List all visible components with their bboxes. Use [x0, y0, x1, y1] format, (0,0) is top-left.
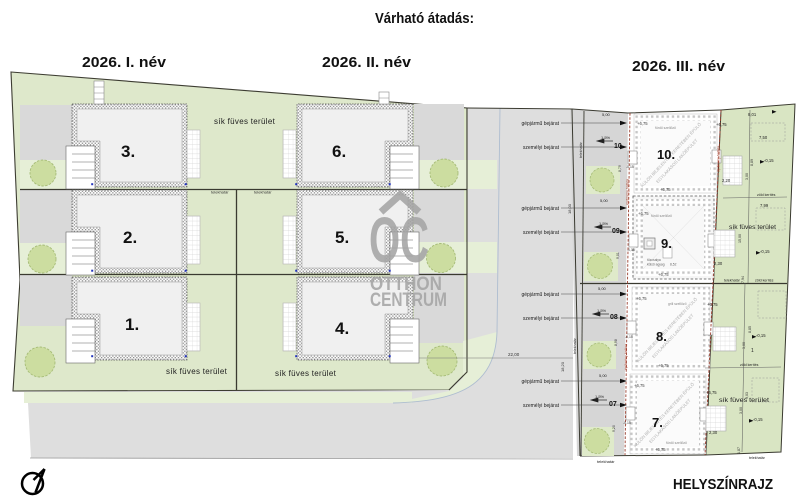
svg-text:2026. I. név: 2026. I. név	[82, 54, 167, 71]
svg-text:10: 10	[614, 143, 622, 150]
svg-text:2.: 2.	[123, 228, 137, 247]
svg-text:08: 08	[610, 314, 618, 321]
svg-text:sík füves terület: sík füves terület	[275, 369, 337, 378]
svg-text:telekhatár: telekhatár	[749, 456, 766, 460]
svg-text:3,00: 3,00	[745, 173, 749, 180]
svg-text:1: 1	[751, 348, 754, 354]
svg-text:8,01: 8,01	[748, 112, 757, 117]
svg-text:telekhatár: telekhatár	[597, 459, 615, 464]
svg-text:tűzcsalya: tűzcsalya	[647, 258, 661, 262]
svg-text:-0,15: -0,15	[760, 249, 770, 254]
svg-text:22,00: 22,00	[508, 352, 520, 357]
svg-text:gépjármű bejárat: gépjármű bejárat	[521, 379, 559, 385]
svg-text:09: 09	[612, 228, 620, 235]
svg-text:telekhatár: telekhatár	[211, 190, 229, 195]
svg-text:5,00: 5,00	[599, 373, 608, 378]
svg-text:OC: OC	[369, 204, 429, 276]
svg-text:10.: 10.	[657, 147, 675, 162]
svg-text:telekhatár: telekhatár	[579, 141, 583, 158]
svg-text:5.: 5.	[335, 228, 349, 247]
svg-text:5,00: 5,00	[600, 198, 609, 203]
svg-text:6.: 6.	[332, 142, 346, 161]
svg-text:07: 07	[609, 401, 617, 408]
svg-text:18,20: 18,20	[560, 361, 565, 372]
svg-text:2026. II. név: 2026. II. név	[322, 54, 412, 71]
svg-text:8,52: 8,52	[670, 263, 677, 267]
svg-text:telekhatár: telekhatár	[724, 279, 741, 283]
svg-text:telekhatár: telekhatár	[254, 190, 272, 195]
svg-text:+6,75: +6,75	[655, 447, 666, 452]
svg-text:-0,15: -0,15	[753, 417, 763, 422]
svg-text:fürdő szellőző: fürdő szellőző	[651, 214, 672, 218]
svg-text:1,87: 1,87	[737, 447, 741, 454]
svg-text:+6,75: +6,75	[706, 390, 717, 395]
svg-text:építmény határa: építmény határa	[717, 146, 721, 172]
svg-text:8,98: 8,98	[614, 339, 618, 346]
svg-text:HELYSZÍNRAJZ: HELYSZÍNRAJZ	[673, 476, 773, 493]
svg-text:gépjármű bejárat: gépjármű bejárat	[521, 206, 559, 212]
svg-text:8,79: 8,79	[618, 165, 622, 172]
svg-text:3,00: 3,00	[739, 407, 743, 414]
svg-text:-0,15: -0,15	[764, 158, 774, 163]
svg-text:7,99: 7,99	[760, 203, 769, 208]
svg-text:Várható átadás:: Várható átadás:	[375, 10, 474, 27]
svg-text:grill szellőző: grill szellőző	[668, 302, 687, 306]
svg-text:9,20: 9,20	[612, 425, 616, 432]
svg-text:2,30: 2,30	[714, 261, 723, 266]
svg-text:külső agyag: külső agyag	[647, 263, 665, 267]
svg-text:személyi bejárat: személyi bejárat	[523, 316, 560, 322]
svg-text:-0,15: -0,15	[623, 421, 631, 425]
svg-text:fürdő szellőző: fürdő szellőző	[666, 441, 687, 445]
svg-text:8,85: 8,85	[748, 326, 752, 333]
svg-text:4.: 4.	[335, 319, 349, 338]
svg-text:+6,75: +6,75	[637, 121, 648, 126]
svg-text:+6,75: +6,75	[658, 363, 669, 368]
svg-text:zöld kerítés: zöld kerítés	[755, 279, 774, 283]
svg-text:-0,15: -0,15	[626, 165, 634, 169]
svg-text:+6,75: +6,75	[707, 302, 718, 307]
svg-text:9,01: 9,01	[616, 252, 620, 259]
svg-text:1.: 1.	[125, 315, 139, 334]
svg-text:-0,15: -0,15	[627, 248, 635, 252]
svg-text:+6,75: +6,75	[638, 211, 649, 216]
svg-text:gépjármű bejárat: gépjármű bejárat	[521, 292, 559, 298]
svg-text:sík füves terület: sík füves terület	[214, 117, 276, 126]
svg-text:CENTRUM: CENTRUM	[370, 290, 447, 311]
svg-text:+6,75: +6,75	[716, 122, 727, 127]
svg-text:sík füves terület: sík füves terület	[166, 367, 228, 376]
svg-text:zöld kerítés: zöld kerítés	[757, 193, 776, 197]
svg-text:7,94: 7,94	[741, 276, 745, 283]
svg-text:-0,15: -0,15	[625, 335, 633, 339]
svg-text:5,00: 5,00	[602, 112, 611, 117]
svg-text:15,00: 15,00	[738, 234, 742, 243]
svg-text:+6,75: +6,75	[658, 272, 669, 277]
svg-text:2,20: 2,20	[722, 178, 731, 183]
svg-text:9,03: 9,03	[745, 392, 749, 399]
svg-text:építmény határa: építmény határa	[624, 344, 628, 370]
svg-text:9.: 9.	[661, 236, 672, 251]
svg-text:személyi bejárat: személyi bejárat	[523, 145, 560, 151]
svg-text:építmény határa: építmény határa	[626, 179, 630, 205]
svg-text:zöld kerítés: zöld kerítés	[740, 363, 759, 367]
svg-text:7.: 7.	[652, 415, 663, 430]
svg-text:+6,75: +6,75	[634, 383, 645, 388]
svg-text:8,89: 8,89	[750, 159, 754, 166]
svg-text:+6,75: +6,75	[660, 187, 671, 192]
svg-text:személyi bejárat: személyi bejárat	[523, 403, 560, 409]
svg-text:8.: 8.	[656, 329, 667, 344]
svg-text:3,00: 3,00	[742, 342, 746, 349]
svg-text:+6,75: +6,75	[636, 296, 647, 301]
svg-text:2026. III. név: 2026. III. név	[632, 58, 726, 75]
svg-text:3.: 3.	[121, 142, 135, 161]
svg-text:18,00: 18,00	[567, 203, 572, 214]
svg-text:5,00: 5,00	[598, 286, 607, 291]
svg-text:sík füves terület: sík füves terület	[729, 224, 776, 231]
svg-text:telekhatár: telekhatár	[573, 337, 577, 354]
svg-text:-0,15: -0,15	[756, 333, 766, 338]
svg-text:gépjármű bejárat: gépjármű bejárat	[521, 121, 559, 127]
svg-text:2,30: 2,30	[709, 430, 718, 435]
svg-text:személyi bejárat: személyi bejárat	[523, 230, 560, 236]
svg-text:fürdő szellőző: fürdő szellőző	[655, 126, 676, 130]
svg-text:7,50: 7,50	[759, 135, 768, 140]
